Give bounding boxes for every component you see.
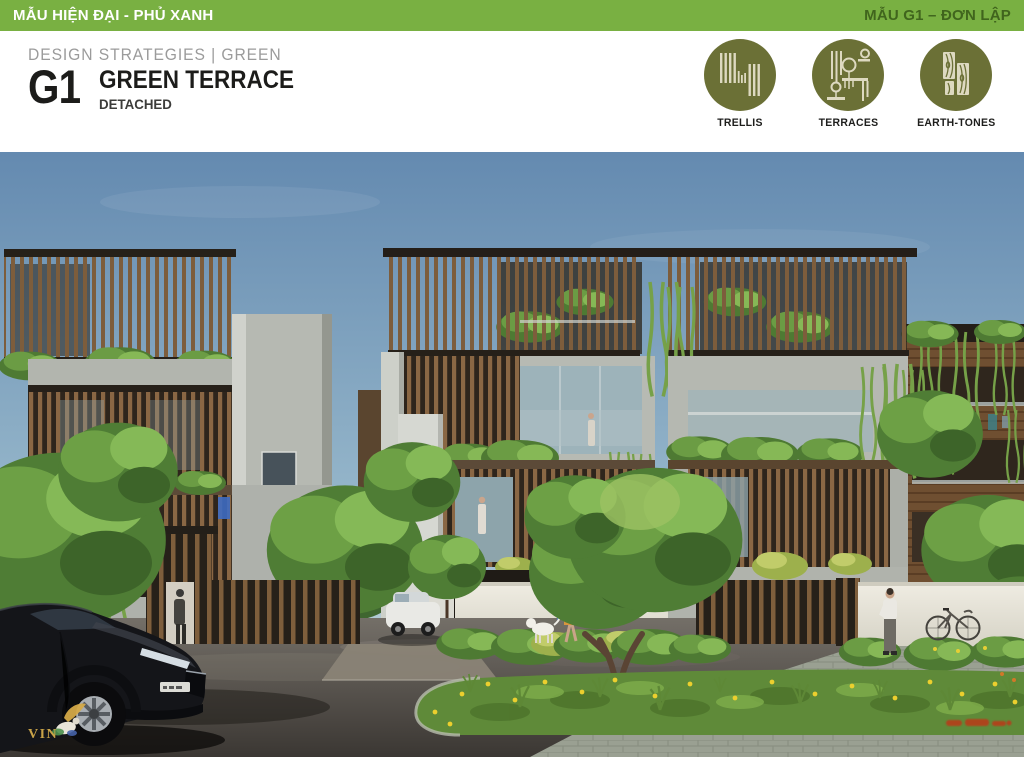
- strategy-badges: TRELLIS: [694, 39, 1002, 129]
- top-bar: MẪU HIỆN ĐẠI - PHỦ XANH MẪU G1 – ĐƠN LẬP: [0, 0, 1024, 31]
- strategy-terraces: TERRACES: [802, 39, 894, 129]
- page-subtitle: DETACHED: [99, 96, 305, 112]
- strategy-trellis: TRELLIS: [694, 39, 786, 129]
- top-bar-left-title: MẪU HIỆN ĐẠI - PHỦ XANH: [13, 7, 213, 24]
- header-row: DESIGN STRATEGIES | GREEN G1 GREEN TERRA…: [0, 31, 1024, 152]
- trellis-icon: [704, 39, 776, 111]
- earth-tones-badge: [920, 39, 992, 111]
- page-title: GREEN TERRACE: [99, 68, 294, 93]
- strategy-label: TERRACES: [818, 117, 878, 129]
- terraces-icon: [812, 39, 884, 111]
- page-code: G1: [28, 68, 80, 107]
- slide-root: MẪU HIỆN ĐẠI - PHỦ XANH MẪU G1 – ĐƠN LẬP…: [0, 0, 1024, 768]
- earth-tones-icon: [920, 39, 992, 111]
- trellis-badge: [704, 39, 776, 111]
- code-row: G1 GREEN TERRACE DETACHED: [28, 68, 315, 112]
- terraces-badge: [812, 39, 884, 111]
- pavement-front: [530, 735, 1024, 757]
- strategy-label: EARTH-TONES: [917, 117, 995, 129]
- brand-logo-text: VIN: [28, 727, 58, 742]
- flower-bed: [416, 670, 1024, 735]
- top-bar-right-title: MẪU G1 – ĐƠN LẬP: [864, 7, 1011, 24]
- strategy-earth-tones: EARTH-TONES: [910, 39, 1002, 129]
- hero-render: VIN: [0, 152, 1024, 757]
- title-block: DESIGN STRATEGIES | GREEN G1 GREEN TERRA…: [28, 45, 315, 112]
- architectural-rendering: VIN: [0, 152, 1024, 757]
- strategy-label: TRELLIS: [717, 117, 763, 129]
